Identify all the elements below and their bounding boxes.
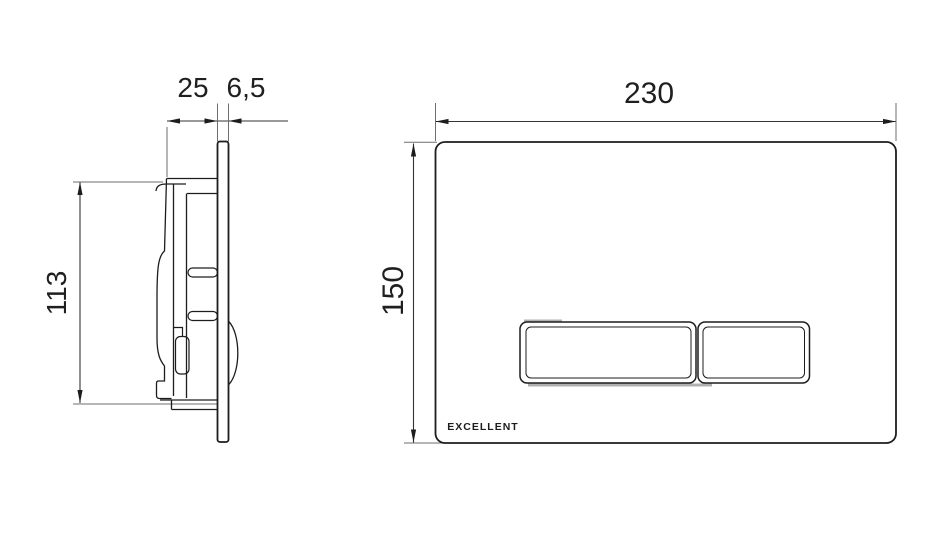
plate-side-profile [218,142,229,443]
arrow-right-icon [883,119,896,124]
arrow-up-icon [77,182,82,195]
arrow-down-icon [77,390,82,403]
dim-label-width: 230 [624,77,674,110]
frame-outline [156,179,217,410]
side-view: 25 6,5 113 [41,72,288,442]
arrow-down-icon [411,430,416,443]
brand-logo: EXCELLENT [447,421,518,433]
technical-drawing-canvas: 25 6,5 113 [0,0,951,558]
drawing-svg: 25 6,5 113 [0,0,951,558]
frame-notch [174,328,183,337]
arrow-left-icon [167,118,180,123]
plate-front-outline [436,142,897,443]
front-view: 230 150 EXCELLENT [377,77,896,443]
frame-cross-section [156,179,218,410]
frame-clip-upper [188,268,218,277]
dim-thickness-6-5: 6,5 [227,72,266,124]
arrow-up-icon [411,144,416,157]
arrow-left-icon [436,119,449,124]
arrow-right-icon [205,118,218,123]
dim-label-depth: 25 [177,72,208,103]
dim-width-230: 230 [436,77,897,141]
frame-clip-lower [188,312,218,321]
dim-label-thickness: 6,5 [227,72,266,103]
arrow-left-icon [229,118,242,123]
dim-label-height: 113 [41,271,72,316]
dim-height-113: 113 [41,182,218,404]
button-dome-arc [229,322,238,385]
dim-label-height: 150 [377,266,410,316]
